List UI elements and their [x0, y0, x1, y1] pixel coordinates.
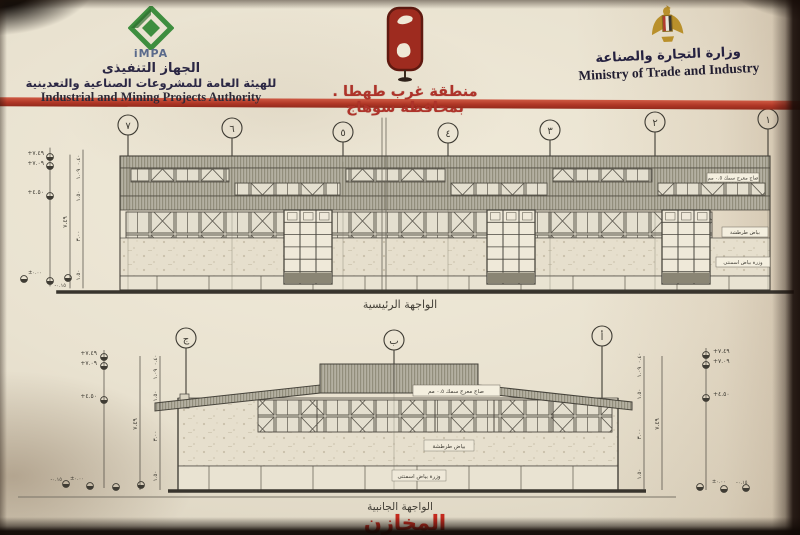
zone-title-arabic: منطقة غرب طهطا . بمحافظة سوهاج [300, 84, 510, 116]
side-chain-labels-left: ٠.٤٠ ١.٠٩ ١.٥٠ ٣.٠٠ ١.٥٠ ٧.٤٩ [132, 355, 159, 482]
axis-label: ٧ [125, 121, 131, 132]
zone-emblem-icon [384, 6, 426, 82]
impa-title-english: Industrial and Mining Projects Authority [6, 90, 296, 105]
note-base: وزرة بياض اسمنتى [723, 260, 763, 266]
main-elevation: ٧ ٦ ٥ ٤ ٣ ٢ ١ [21, 109, 792, 311]
impa-authority-block: iMPA الجهاز التنفيذى للهيئة العامة للمشر… [6, 6, 296, 105]
side-dimensions-left [63, 350, 160, 490]
svg-text:±٠.٠٠: ±٠.٠٠ [70, 476, 84, 482]
svg-text:٧.٤٩: ٧.٤٩ [132, 418, 139, 430]
svg-text:٧.٤٩: ٧.٤٩ [62, 216, 69, 228]
axis-label: ١ [765, 115, 770, 126]
impa-logo-word: iMPA [6, 47, 296, 60]
main-level-labels: +٧.٤٩ +٧.٠٩ +٤.٥٠ ±٠.٠٠ -٠.١٥ [27, 150, 66, 289]
svg-text:٣.٠٠: ٣.٠٠ [153, 431, 159, 442]
svg-text:٠.٤٠: ٠.٤٠ [76, 155, 82, 166]
svg-text:+٧.٤٩: +٧.٤٩ [27, 150, 44, 157]
door [662, 210, 710, 284]
svg-text:١.٥٠: ١.٥٠ [76, 270, 82, 281]
main-elevation-caption: الواجهة الرئيسية [363, 298, 437, 311]
axis-label: ٤ [445, 129, 450, 140]
zone-block: منطقة غرب طهطا . بمحافظة سوهاج [300, 6, 510, 116]
side-elevation: ج ب أ [18, 326, 749, 513]
sheet-title: المخازن [315, 511, 495, 535]
side-level-labels-left: +٧.٤٩ +٧.٠٩ +٤.٥٠ ±٠.٠٠ -٠.١٥ [51, 350, 97, 483]
svg-text:ج: ج [183, 334, 190, 345]
svg-text:٣.٠٠: ٣.٠٠ [76, 231, 82, 242]
impa-title-arabic: الجهاز التنفيذى [6, 61, 296, 76]
svg-text:١.٠٩: ١.٠٩ [637, 367, 643, 378]
side-axis-labels: ج ب أ [183, 330, 604, 347]
side-chain-labels-right: ٠.٤٠ ١.٠٩ ١.٥٠ ٣.٠٠ ١.٥٠ ٧.٤٩ [637, 353, 661, 480]
svg-text:+٧.٤٩: +٧.٤٩ [80, 350, 97, 357]
svg-text:+٧.٠٩: +٧.٠٩ [27, 160, 44, 167]
axis-label: ٢ [652, 118, 657, 129]
svg-text:٠.٤٠: ٠.٤٠ [637, 353, 643, 364]
svg-text:±٠.٠٠: ±٠.٠٠ [712, 479, 726, 485]
svg-text:+٤.٥٠: +٤.٥٠ [27, 189, 44, 196]
side-level-labels-right: +٧.٤٩ +٧.٠٩ +٤.٥٠ ±٠.٠٠ -٠.١٥ [712, 348, 748, 486]
svg-text:+٧.٠٩: +٧.٠٩ [713, 358, 730, 365]
svg-text:+٧.٠٩: +٧.٠٩ [80, 360, 97, 367]
svg-text:١.٥٠: ١.٥٠ [76, 191, 82, 202]
svg-text:٧.٤٩: ٧.٤٩ [654, 418, 661, 430]
svg-text:+٤.٥٠: +٤.٥٠ [713, 391, 730, 398]
door [284, 210, 332, 284]
svg-text:-٠.١٥: -٠.١٥ [51, 477, 63, 483]
note-base: وزرة بياض اسمنتى [397, 474, 440, 480]
main-chain-labels: ٠.٤٠ ١.٠٩ ١.٥٠ ٣.٠٠ ١.٥٠ ٧.٤٩ [62, 155, 82, 281]
axis-label: ٥ [340, 128, 345, 139]
svg-text:+٧.٤٩: +٧.٤٩ [713, 348, 730, 355]
svg-text:١.٥٠: ١.٥٠ [153, 471, 159, 482]
impa-logo-icon [128, 6, 174, 50]
svg-text:١.٠٩: ١.٠٩ [153, 369, 159, 380]
svg-text:أ: أ [601, 330, 604, 343]
svg-text:±٠.٠٠: ±٠.٠٠ [28, 270, 42, 276]
door [487, 210, 535, 284]
main-dimensions [21, 148, 83, 288]
photographed-drawing-sheet: iMPA الجهاز التنفيذى للهيئة العامة للمشر… [0, 0, 800, 535]
ministry-block: وزارة التجارة والصناعة Ministry of Trade… [538, 0, 796, 86]
svg-text:١.٠٩: ١.٠٩ [76, 169, 82, 180]
note-roof: صاج معرج سمك ٠.٥ مم [708, 176, 759, 182]
svg-text:١.٥٠: ١.٥٠ [153, 391, 159, 402]
svg-text:١.٥٠: ١.٥٠ [637, 389, 643, 400]
axis-label: ٦ [229, 124, 234, 135]
svg-text:+٤.٥٠: +٤.٥٠ [80, 393, 97, 400]
impa-subtitle-arabic: للهيئة العامة للمشروعات الصناعية والتعدي… [6, 76, 296, 90]
svg-text:١.٥٠: ١.٥٠ [637, 469, 643, 480]
svg-text:-٠.١٥: -٠.١٥ [736, 480, 748, 486]
svg-text:٠.٤٠: ٠.٤٠ [153, 355, 159, 366]
svg-text:٣.٠٠: ٣.٠٠ [637, 429, 643, 440]
note-roof: صاج معرج سمك ٠.٥ مم [428, 389, 484, 395]
note-wall: بياض طرطشة [433, 444, 466, 450]
note-wall: بياض طرطشة [730, 230, 760, 236]
axis-label: ٣ [547, 126, 553, 137]
main-facade [58, 118, 792, 292]
svg-text:-٠.١٥: -٠.١٥ [55, 283, 67, 289]
svg-text:ب: ب [389, 336, 398, 347]
eagle-emblem-icon [648, 3, 686, 47]
